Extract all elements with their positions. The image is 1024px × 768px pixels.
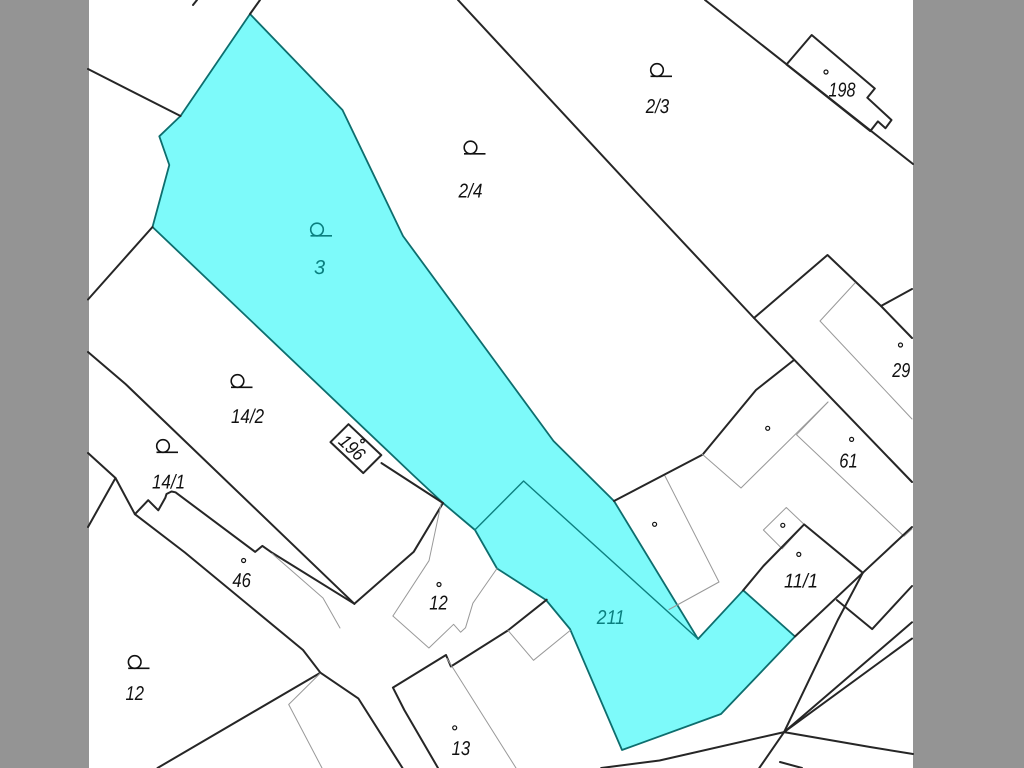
svg-text:2/4: 2/4 bbox=[458, 181, 483, 203]
svg-text:13: 13 bbox=[452, 738, 471, 760]
svg-text:2/3: 2/3 bbox=[645, 96, 669, 118]
svg-text:46: 46 bbox=[232, 570, 251, 592]
svg-text:11/1: 11/1 bbox=[784, 570, 818, 592]
svg-text:211: 211 bbox=[596, 607, 625, 629]
svg-text:29: 29 bbox=[891, 360, 910, 382]
svg-text:198: 198 bbox=[829, 80, 856, 102]
svg-text:3: 3 bbox=[314, 257, 325, 279]
svg-text:61: 61 bbox=[839, 450, 858, 472]
svg-text:14/2: 14/2 bbox=[231, 406, 264, 428]
svg-text:12: 12 bbox=[429, 593, 448, 615]
svg-text:12: 12 bbox=[126, 683, 145, 705]
svg-text:14/1: 14/1 bbox=[152, 472, 185, 494]
